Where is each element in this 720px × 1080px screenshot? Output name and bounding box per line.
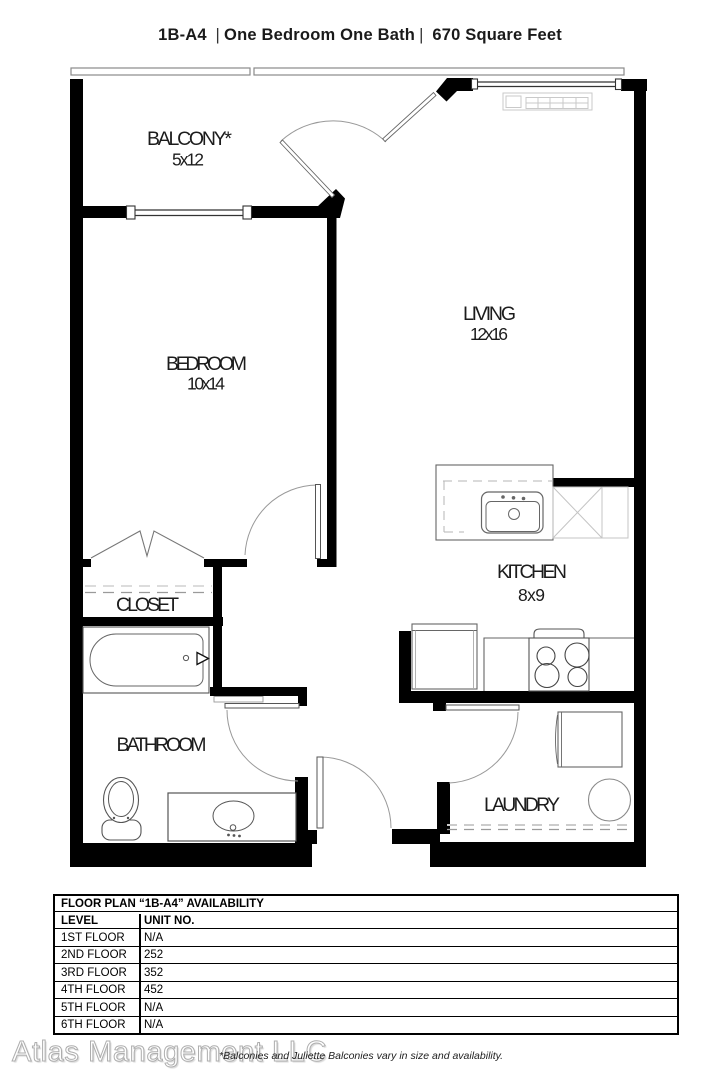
svg-text:BALCONY*: BALCONY* [147,128,232,150]
svg-text:BATHROOM: BATHROOM [117,734,207,756]
svg-text:CLOSET: CLOSET [116,594,179,616]
svg-text:LIVING: LIVING [463,303,516,325]
svg-text:BEDROOM: BEDROOM [166,353,247,375]
svg-text:10x14: 10x14 [187,374,225,394]
svg-text:8x9: 8x9 [518,585,545,605]
svg-text:KITCHEN: KITCHEN [497,561,567,583]
svg-text:5x12: 5x12 [172,150,204,170]
svg-text:12x16: 12x16 [470,324,508,344]
svg-text:LAUNDRY: LAUNDRY [484,794,560,816]
